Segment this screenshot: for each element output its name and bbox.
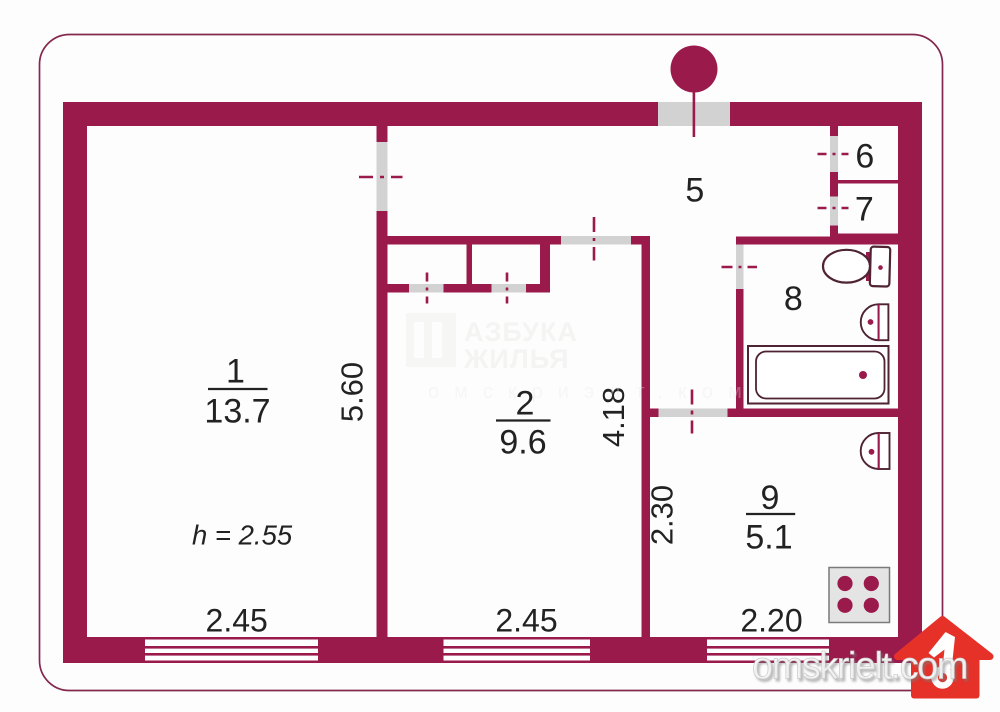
svg-text:2.30: 2.30 bbox=[644, 485, 679, 545]
svg-text:9.6: 9.6 bbox=[499, 424, 546, 462]
svg-text:1: 1 bbox=[226, 353, 245, 391]
svg-text:6: 6 bbox=[855, 138, 874, 176]
svg-text:h = 2.55: h = 2.55 bbox=[192, 520, 293, 551]
svg-text:8: 8 bbox=[784, 280, 803, 318]
svg-text:9: 9 bbox=[761, 479, 780, 517]
svg-text:2.20: 2.20 bbox=[740, 603, 802, 639]
svg-text:5.1: 5.1 bbox=[745, 519, 792, 557]
svg-text:5.60: 5.60 bbox=[334, 362, 369, 422]
svg-text:ЖИЛЬЯ: ЖИЛЬЯ bbox=[463, 344, 570, 374]
svg-text:5: 5 bbox=[685, 172, 704, 210]
svg-text:2.45: 2.45 bbox=[495, 603, 557, 639]
svg-text:2.45: 2.45 bbox=[206, 603, 268, 639]
svg-text:7: 7 bbox=[855, 190, 874, 228]
svg-text:13.7: 13.7 bbox=[204, 393, 270, 431]
svg-text:АЗБУКА: АЗБУКА bbox=[464, 317, 578, 347]
svg-text:омскриэлт.ком: омскриэлт.ком bbox=[428, 381, 757, 403]
svg-text:omskrielt.com: omskrielt.com bbox=[752, 646, 967, 688]
